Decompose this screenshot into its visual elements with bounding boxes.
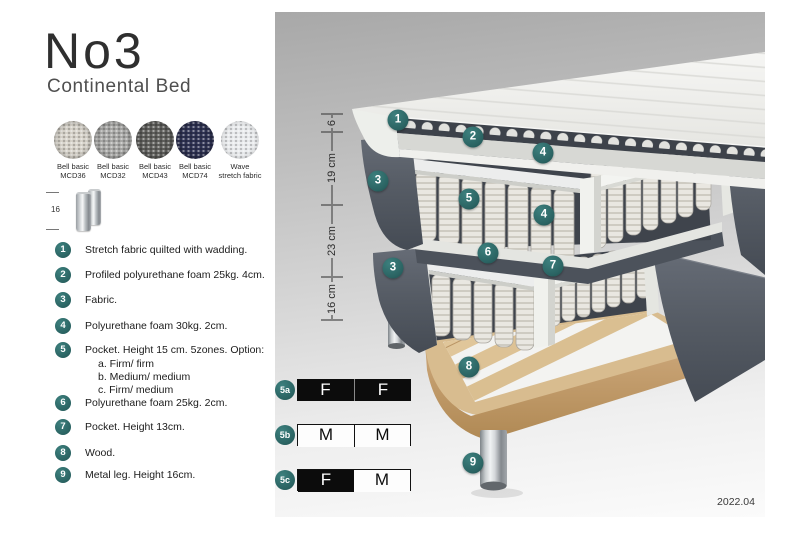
callout-3-lower: 3 <box>383 258 404 279</box>
fabric-swatch-mcd74 <box>176 121 214 159</box>
dimension-label-16: 16 cm <box>326 284 338 314</box>
legend-badge: 2 <box>55 267 71 283</box>
callout-8: 8 <box>459 357 480 378</box>
firmness-cell: M <box>354 470 410 492</box>
legend-badge: 9 <box>55 467 71 483</box>
page-title: No3 <box>44 22 145 80</box>
callout-2: 2 <box>463 127 484 148</box>
firmness-cell: M <box>354 425 410 447</box>
dimension-label-6: 6 <box>326 120 338 126</box>
callout-4-lower: 4 <box>534 205 555 226</box>
fabric-swatch-wave <box>221 121 259 159</box>
firmness-bar-5a: F F <box>297 379 411 401</box>
firmness-bar-5c: F M <box>297 469 411 491</box>
legend-badge: 8 <box>55 445 71 461</box>
firmness-badge-5b: 5b <box>275 425 295 445</box>
callout-7: 7 <box>543 256 564 277</box>
callout-9: 9 <box>463 453 484 474</box>
legend-badge: 1 <box>55 242 71 258</box>
metal-leg-icon <box>76 192 91 231</box>
version-stamp: 2022.04 <box>717 496 755 508</box>
fabric-swatch-mcd32 <box>94 121 132 159</box>
callout-5: 5 <box>459 189 480 210</box>
callout-6: 6 <box>478 243 499 264</box>
firmness-bar-5b: M M <box>297 424 411 446</box>
fabric-swatch-mcd36 <box>54 121 92 159</box>
legend-badge: 7 <box>55 419 71 435</box>
leg-dimension-value: 16 <box>51 205 60 214</box>
dimension-label-19: 19 cm <box>326 153 338 183</box>
legend-option-b: b. Medium/ medium <box>98 371 190 384</box>
fabric-swatch-mcd43 <box>136 121 174 159</box>
legend-badge: 5 <box>55 342 71 358</box>
legend-option-a: a. Firm/ firm <box>98 358 154 371</box>
page-subtitle: Continental Bed <box>47 76 191 98</box>
legend-badge: 6 <box>55 395 71 411</box>
swatch-label: Bell basicMCD32 <box>90 162 136 181</box>
firmness-cell: F <box>297 379 354 401</box>
legend-badge: 4 <box>55 318 71 334</box>
swatch-label: Bell basicMCD74 <box>172 162 218 181</box>
spec-sheet: No3 Continental Bed Bell basicMCD36 Bell… <box>0 0 800 533</box>
firmness-badge-5a: 5a <box>275 380 295 400</box>
firmness-badge-5c: 5c <box>275 470 295 490</box>
firmness-cell: F <box>298 470 354 492</box>
firmness-cell: F <box>354 379 411 401</box>
swatch-label: Wavestretch fabric <box>214 162 266 181</box>
callout-4-upper: 4 <box>533 143 554 164</box>
callout-1: 1 <box>388 110 409 131</box>
firmness-cell: M <box>298 425 354 447</box>
illustration-panel: 6 19 cm 23 cm 16 cm 1 2 4 3 5 4 6 7 3 8 … <box>275 12 765 517</box>
dimension-label-23: 23 cm <box>326 226 338 256</box>
callout-3-upper: 3 <box>368 171 389 192</box>
legend-badge: 3 <box>55 292 71 308</box>
